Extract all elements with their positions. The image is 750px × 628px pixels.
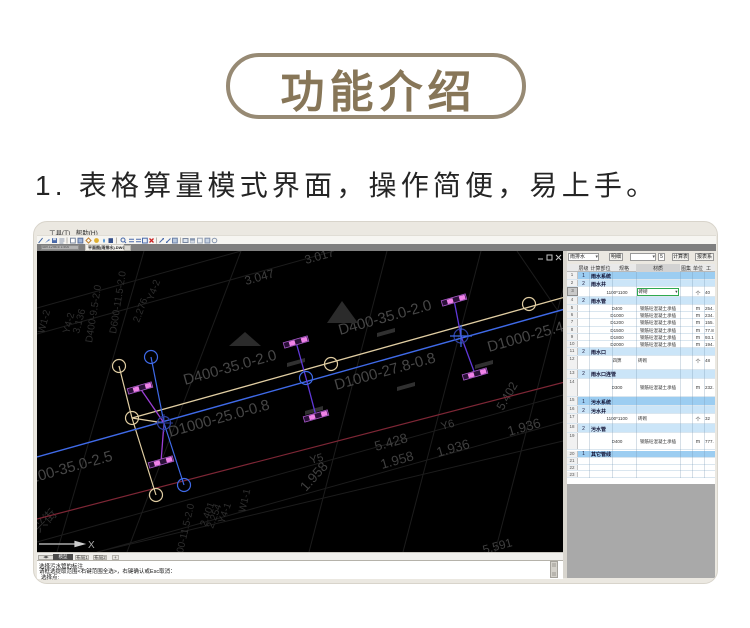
svg-text:D600-11.5-2.0: D600-11.5-2.0: [108, 270, 129, 335]
svg-text:兴街: 兴街: [37, 506, 60, 535]
svg-text:1.936: 1.936: [506, 415, 543, 439]
svg-text:5.591: 5.591: [481, 535, 514, 552]
svg-text:Y4-2: Y4-2: [145, 278, 163, 302]
svg-text:2.276: 2.276: [131, 296, 150, 324]
svg-text:W1-2: W1-2: [37, 308, 53, 334]
svg-text:D1000-25.0-0.8: D1000-25.0-0.8: [167, 396, 272, 440]
svg-text:D600-11.5-2.0: D600-11.5-2.0: [172, 502, 197, 552]
svg-text:1.936: 1.936: [435, 436, 472, 460]
svg-text:3.047: 3.047: [243, 266, 276, 288]
svg-text:D400-35.0-2.0: D400-35.0-2.0: [182, 347, 279, 389]
svg-text:Y6: Y6: [440, 418, 456, 433]
svg-text:D1000-25.4-0.8: D1000-25.4-0.8: [486, 311, 563, 355]
svg-text:X: X: [88, 540, 95, 551]
svg-text:W1-1: W1-1: [237, 487, 253, 513]
svg-text:3.017: 3.017: [303, 251, 336, 267]
svg-text:D1000-27.8-0.8: D1000-27.8-0.8: [333, 349, 438, 393]
